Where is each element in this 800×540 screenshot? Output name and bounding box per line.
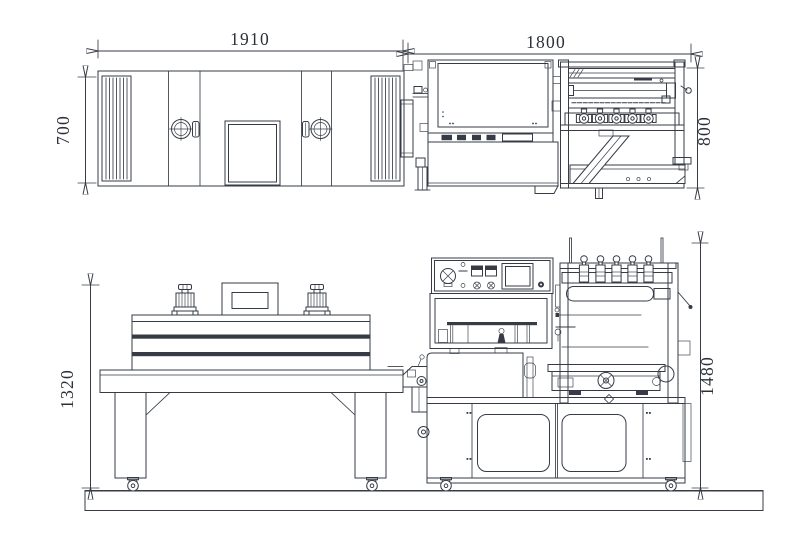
discharge-bracket	[403, 355, 427, 412]
shrink-tunnel-top-view	[98, 71, 404, 186]
dim-tunnel-top-width: 1910	[98, 29, 403, 70]
dim-sealer-top-depth: 800	[687, 68, 714, 188]
dim-tunnel-height: 1320	[57, 285, 99, 488]
dim-label-1910: 1910	[230, 29, 270, 49]
infeed-cover	[427, 353, 523, 398]
dim-label-1320: 1320	[57, 369, 77, 409]
sealer-caster-left	[441, 478, 452, 492]
sealer-caster-right	[666, 478, 677, 492]
dim-sealer-top-width: 1800	[408, 32, 691, 63]
l-sealer-top-view	[401, 60, 691, 199]
tunnel-motor-right	[304, 285, 330, 316]
touch-screen	[502, 264, 533, 290]
tunnel-vent-panel	[225, 121, 280, 185]
tunnel-knob-right	[303, 118, 333, 141]
film-unwind-side-view	[555, 238, 693, 403]
machine-dimension-drawing: 1910 1800 700 800 1320 1480	[0, 0, 800, 540]
tunnel-knob-left	[170, 118, 200, 141]
cabinet-door-window-left	[478, 415, 550, 472]
tunnel-motor-left	[172, 285, 198, 316]
tunnel-caster-left	[128, 478, 139, 492]
dim-label-800: 800	[694, 116, 714, 146]
technical-drawing-svg: 1910 1800 700 800 1320 1480	[0, 0, 800, 540]
dim-label-1800: 1800	[526, 32, 566, 52]
tunnel-caster-right	[367, 478, 378, 492]
dim-label-1480: 1480	[697, 356, 717, 396]
base-cabinet	[427, 398, 691, 484]
cabinet-door-window-right	[562, 415, 626, 472]
dim-label-700: 700	[53, 115, 73, 145]
shrink-tunnel-side-view	[100, 283, 403, 491]
l-sealer-side-view	[403, 238, 693, 491]
dim-tunnel-top-depth: 700	[53, 77, 96, 183]
dim-sealer-height: 1480	[692, 243, 717, 488]
sealing-hood	[430, 294, 552, 354]
ground-hatching	[85, 491, 763, 511]
tunnel-control-box	[222, 283, 278, 315]
control-panel	[432, 258, 554, 294]
